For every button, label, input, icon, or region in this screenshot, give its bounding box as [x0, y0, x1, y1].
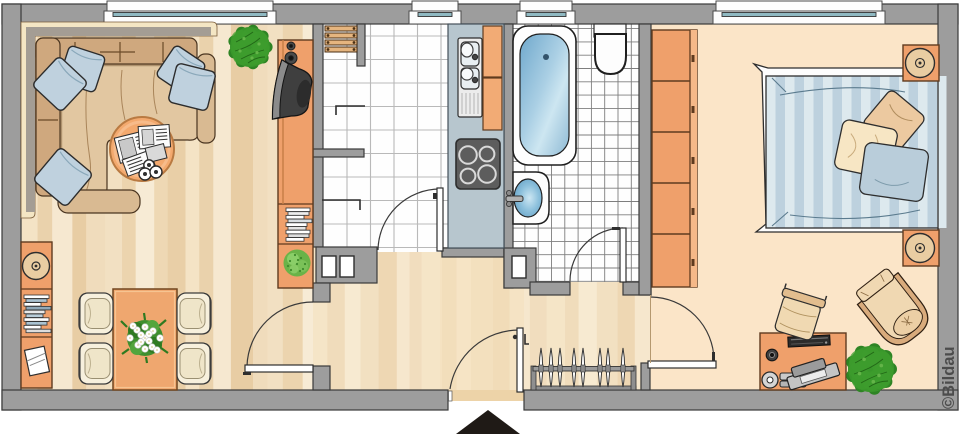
svg-text:©Bildau: ©Bildau — [940, 346, 958, 409]
